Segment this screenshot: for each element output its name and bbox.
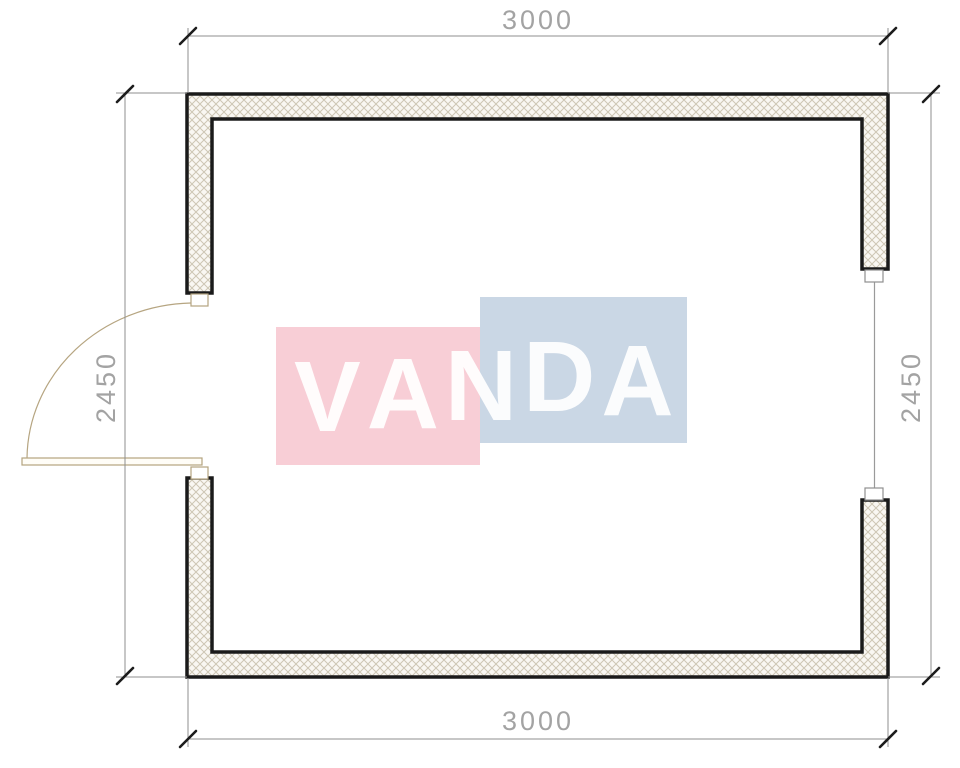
door-jamb-top (191, 294, 208, 306)
watermark-letter: A (367, 344, 439, 444)
watermark-letter: V (294, 347, 361, 447)
dimension-label-right-height: 2450 (896, 327, 926, 447)
watermark-letter: A (601, 331, 673, 431)
watermark-letter: N (445, 336, 517, 436)
dimension-label-bottom-width: 3000 (438, 706, 638, 736)
door-leaf (22, 458, 202, 465)
floorplan-canvas: 3000 3000 2450 2450 V A N D A (0, 0, 960, 768)
window-jamb-top (865, 270, 883, 282)
dimension-label-left-height: 2450 (91, 327, 121, 447)
wall-lower-section (187, 478, 888, 677)
window-jamb-bottom (865, 488, 883, 500)
dimension-label-top-width: 3000 (438, 5, 638, 35)
watermark-logo-text: V A N D A (294, 327, 674, 427)
door-jamb-bottom (191, 467, 208, 479)
watermark-letter: D (523, 327, 595, 427)
wall-upper-section (187, 94, 888, 293)
